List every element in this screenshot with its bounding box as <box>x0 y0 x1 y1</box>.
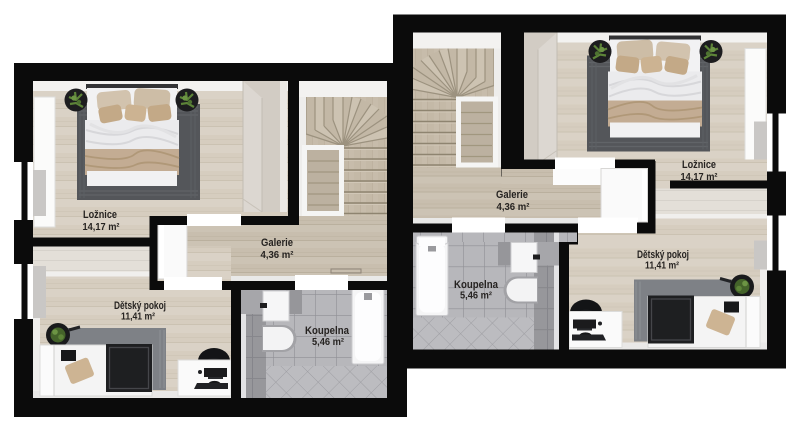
svg-text:5,46 m²: 5,46 m² <box>312 336 344 348</box>
svg-text:Galerie: Galerie <box>496 189 528 201</box>
svg-text:4,36 m²: 4,36 m² <box>261 249 294 261</box>
svg-text:14,17 m²: 14,17 m² <box>83 221 120 233</box>
svg-text:4,36 m²: 4,36 m² <box>497 201 530 213</box>
svg-text:11,41 m²: 11,41 m² <box>121 311 155 323</box>
svg-text:Ložnice: Ložnice <box>83 209 117 221</box>
svg-text:11,41 m²: 11,41 m² <box>645 260 679 272</box>
svg-text:14,17 m²: 14,17 m² <box>681 171 718 183</box>
svg-text:5,46 m²: 5,46 m² <box>460 290 492 302</box>
svg-text:Galerie: Galerie <box>261 237 293 249</box>
svg-text:Ložnice: Ložnice <box>682 159 716 171</box>
